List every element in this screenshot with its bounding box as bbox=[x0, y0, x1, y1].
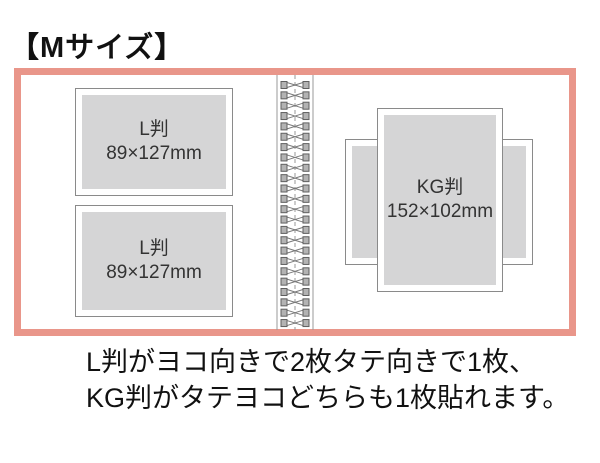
slot-name-label: KG判 bbox=[417, 176, 463, 200]
caption-line-2: KG判がタテヨコどちらも1枚貼れます。 bbox=[86, 380, 569, 416]
slot-size-label: 152×102mm bbox=[387, 200, 493, 224]
binding-ring bbox=[281, 164, 309, 171]
spiral-binding bbox=[270, 75, 320, 330]
binding-ring bbox=[281, 144, 309, 151]
caption: L判がヨコ向きで2枚タテ向きで1枚、 KG判がタテヨコどちらも1枚貼れます。 bbox=[86, 344, 569, 416]
photo-slot-l-2: L判 89×127mm bbox=[75, 205, 233, 317]
photo-area: L判 89×127mm bbox=[82, 95, 226, 189]
caption-line-1: L判がヨコ向きで2枚タテ向きで1枚、 bbox=[86, 344, 569, 380]
slot-name-label: L判 bbox=[139, 237, 169, 261]
slot-size-label: 89×127mm bbox=[106, 261, 202, 285]
photo-area: KG判 152×102mm bbox=[384, 115, 496, 285]
photo-slot-l-1: L判 89×127mm bbox=[75, 88, 233, 196]
page-title: 【Mサイズ】 bbox=[10, 24, 184, 66]
binding-ring bbox=[281, 123, 309, 130]
slot-size-label: 89×127mm bbox=[106, 142, 202, 166]
photo-area: L判 89×127mm bbox=[82, 212, 226, 310]
photo-slot-kg-portrait: KG判 152×102mm bbox=[377, 108, 503, 292]
slot-name-label: L判 bbox=[139, 118, 169, 142]
size-guide-figure: 【Mサイズ】 L判 89×127mm L判 89×127mm KG判 152×1… bbox=[0, 0, 600, 463]
